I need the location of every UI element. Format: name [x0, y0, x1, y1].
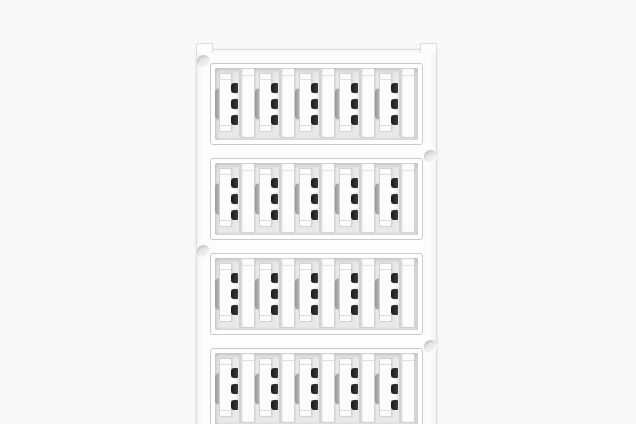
clip-serration	[311, 178, 318, 220]
serration-notch	[271, 194, 278, 204]
serration-notch	[271, 83, 278, 93]
marker-unit	[338, 353, 378, 424]
serration-notch	[391, 210, 398, 220]
serration-notch	[391, 178, 398, 188]
marker-strip	[359, 68, 375, 138]
serration-notch	[351, 210, 358, 220]
marker-unit	[338, 68, 378, 140]
serration-notch	[391, 99, 398, 109]
clip-serration	[351, 178, 358, 220]
serration-notch	[351, 273, 358, 283]
serration-notch	[311, 289, 318, 299]
marker-unit	[258, 68, 298, 140]
serration-notch	[351, 115, 358, 125]
marker-rows	[210, 63, 423, 424]
serration-notch	[231, 384, 238, 394]
serration-notch	[391, 305, 398, 315]
serration-notch	[271, 99, 278, 109]
marker-unit	[258, 258, 298, 330]
clip-serration	[271, 83, 278, 125]
serration-notch	[271, 273, 278, 283]
product-photo	[0, 0, 636, 424]
serration-notch	[391, 368, 398, 378]
marker-row	[210, 348, 423, 424]
marker-strip	[359, 353, 375, 423]
serration-notch	[311, 400, 318, 410]
serration-notch	[311, 178, 318, 188]
marker-strip	[239, 163, 255, 233]
marker-unit	[298, 258, 338, 330]
serration-notch	[391, 273, 398, 283]
marker-unit	[218, 353, 258, 424]
serration-notch	[391, 115, 398, 125]
serration-notch	[271, 368, 278, 378]
serration-notch	[311, 384, 318, 394]
marker-unit	[378, 353, 418, 424]
marker-unit	[338, 258, 378, 330]
marker-unit	[378, 68, 418, 140]
clip-serration	[391, 178, 398, 220]
marker-unit	[218, 163, 258, 235]
marker-unit	[298, 353, 338, 424]
marker-unit	[338, 163, 378, 235]
serration-notch	[351, 305, 358, 315]
clip-serration	[351, 273, 358, 315]
clip-serration	[351, 368, 358, 410]
serration-notch	[231, 305, 238, 315]
marker-strip	[399, 68, 415, 138]
marker-unit	[218, 258, 258, 330]
clip-serration	[391, 83, 398, 125]
serration-notch	[231, 194, 238, 204]
marker-strip	[279, 353, 295, 423]
serration-notch	[231, 273, 238, 283]
serration-notch	[391, 400, 398, 410]
marker-row-interior	[215, 163, 418, 235]
serration-notch	[271, 115, 278, 125]
marker-strip	[239, 353, 255, 423]
serration-notch	[311, 368, 318, 378]
serration-notch	[231, 115, 238, 125]
serration-notch	[311, 194, 318, 204]
clip-serration	[311, 83, 318, 125]
marker-strip	[359, 258, 375, 328]
marker-strip	[319, 258, 335, 328]
serration-notch	[351, 83, 358, 93]
serration-notch	[271, 289, 278, 299]
serration-notch	[231, 289, 238, 299]
serration-notch	[351, 99, 358, 109]
marker-unit	[298, 163, 338, 235]
serration-notch	[311, 273, 318, 283]
serration-notch	[271, 178, 278, 188]
marker-unit	[258, 353, 298, 424]
marker-strip	[319, 353, 335, 423]
marker-row	[210, 63, 423, 145]
clip-serration	[231, 83, 238, 125]
marker-row-interior	[215, 353, 418, 424]
card-corner-tab-left	[196, 43, 213, 53]
clip-serration	[231, 368, 238, 410]
marker-strip	[319, 68, 335, 138]
serration-notch	[351, 178, 358, 188]
marker-strip	[359, 163, 375, 233]
serration-notch	[311, 115, 318, 125]
serration-notch	[311, 99, 318, 109]
serration-notch	[351, 384, 358, 394]
marker-unit	[298, 68, 338, 140]
marker-row	[210, 253, 423, 335]
marker-strip	[239, 68, 255, 138]
mounting-hole	[424, 150, 437, 163]
serration-notch	[271, 210, 278, 220]
marker-row-interior	[215, 258, 418, 330]
serration-notch	[231, 178, 238, 188]
marker-strip	[399, 353, 415, 423]
serration-notch	[271, 305, 278, 315]
clip-serration	[351, 83, 358, 125]
clip-serration	[311, 368, 318, 410]
marker-row-interior	[215, 68, 418, 140]
marker-strip	[319, 163, 335, 233]
marker-strip	[279, 68, 295, 138]
serration-notch	[231, 400, 238, 410]
marker-strip	[399, 258, 415, 328]
marker-strip	[279, 163, 295, 233]
marker-unit	[218, 68, 258, 140]
serration-notch	[351, 368, 358, 378]
serration-notch	[311, 210, 318, 220]
serration-notch	[311, 305, 318, 315]
serration-notch	[351, 194, 358, 204]
serration-notch	[271, 384, 278, 394]
clip-serration	[271, 273, 278, 315]
clip-serration	[391, 273, 398, 315]
marker-strip	[239, 258, 255, 328]
marker-unit	[258, 163, 298, 235]
marker-row	[210, 158, 423, 240]
serration-notch	[271, 400, 278, 410]
card-corner-tab-right	[420, 43, 437, 53]
marker-unit	[378, 163, 418, 235]
serration-notch	[391, 289, 398, 299]
clip-serration	[231, 178, 238, 220]
mounting-hole	[197, 55, 210, 68]
marker-strip	[399, 163, 415, 233]
serration-notch	[231, 83, 238, 93]
clip-serration	[311, 273, 318, 315]
serration-notch	[351, 400, 358, 410]
serration-notch	[231, 368, 238, 378]
clip-serration	[231, 273, 238, 315]
serration-notch	[351, 289, 358, 299]
clip-serration	[391, 368, 398, 410]
clip-serration	[271, 368, 278, 410]
serration-notch	[311, 83, 318, 93]
serration-notch	[231, 210, 238, 220]
marker-card	[196, 49, 437, 424]
mounting-hole	[424, 340, 437, 353]
marker-strip	[279, 258, 295, 328]
mounting-hole	[197, 245, 210, 258]
serration-notch	[391, 384, 398, 394]
clip-serration	[271, 178, 278, 220]
serration-notch	[231, 99, 238, 109]
marker-unit	[378, 258, 418, 330]
serration-notch	[391, 83, 398, 93]
serration-notch	[391, 194, 398, 204]
